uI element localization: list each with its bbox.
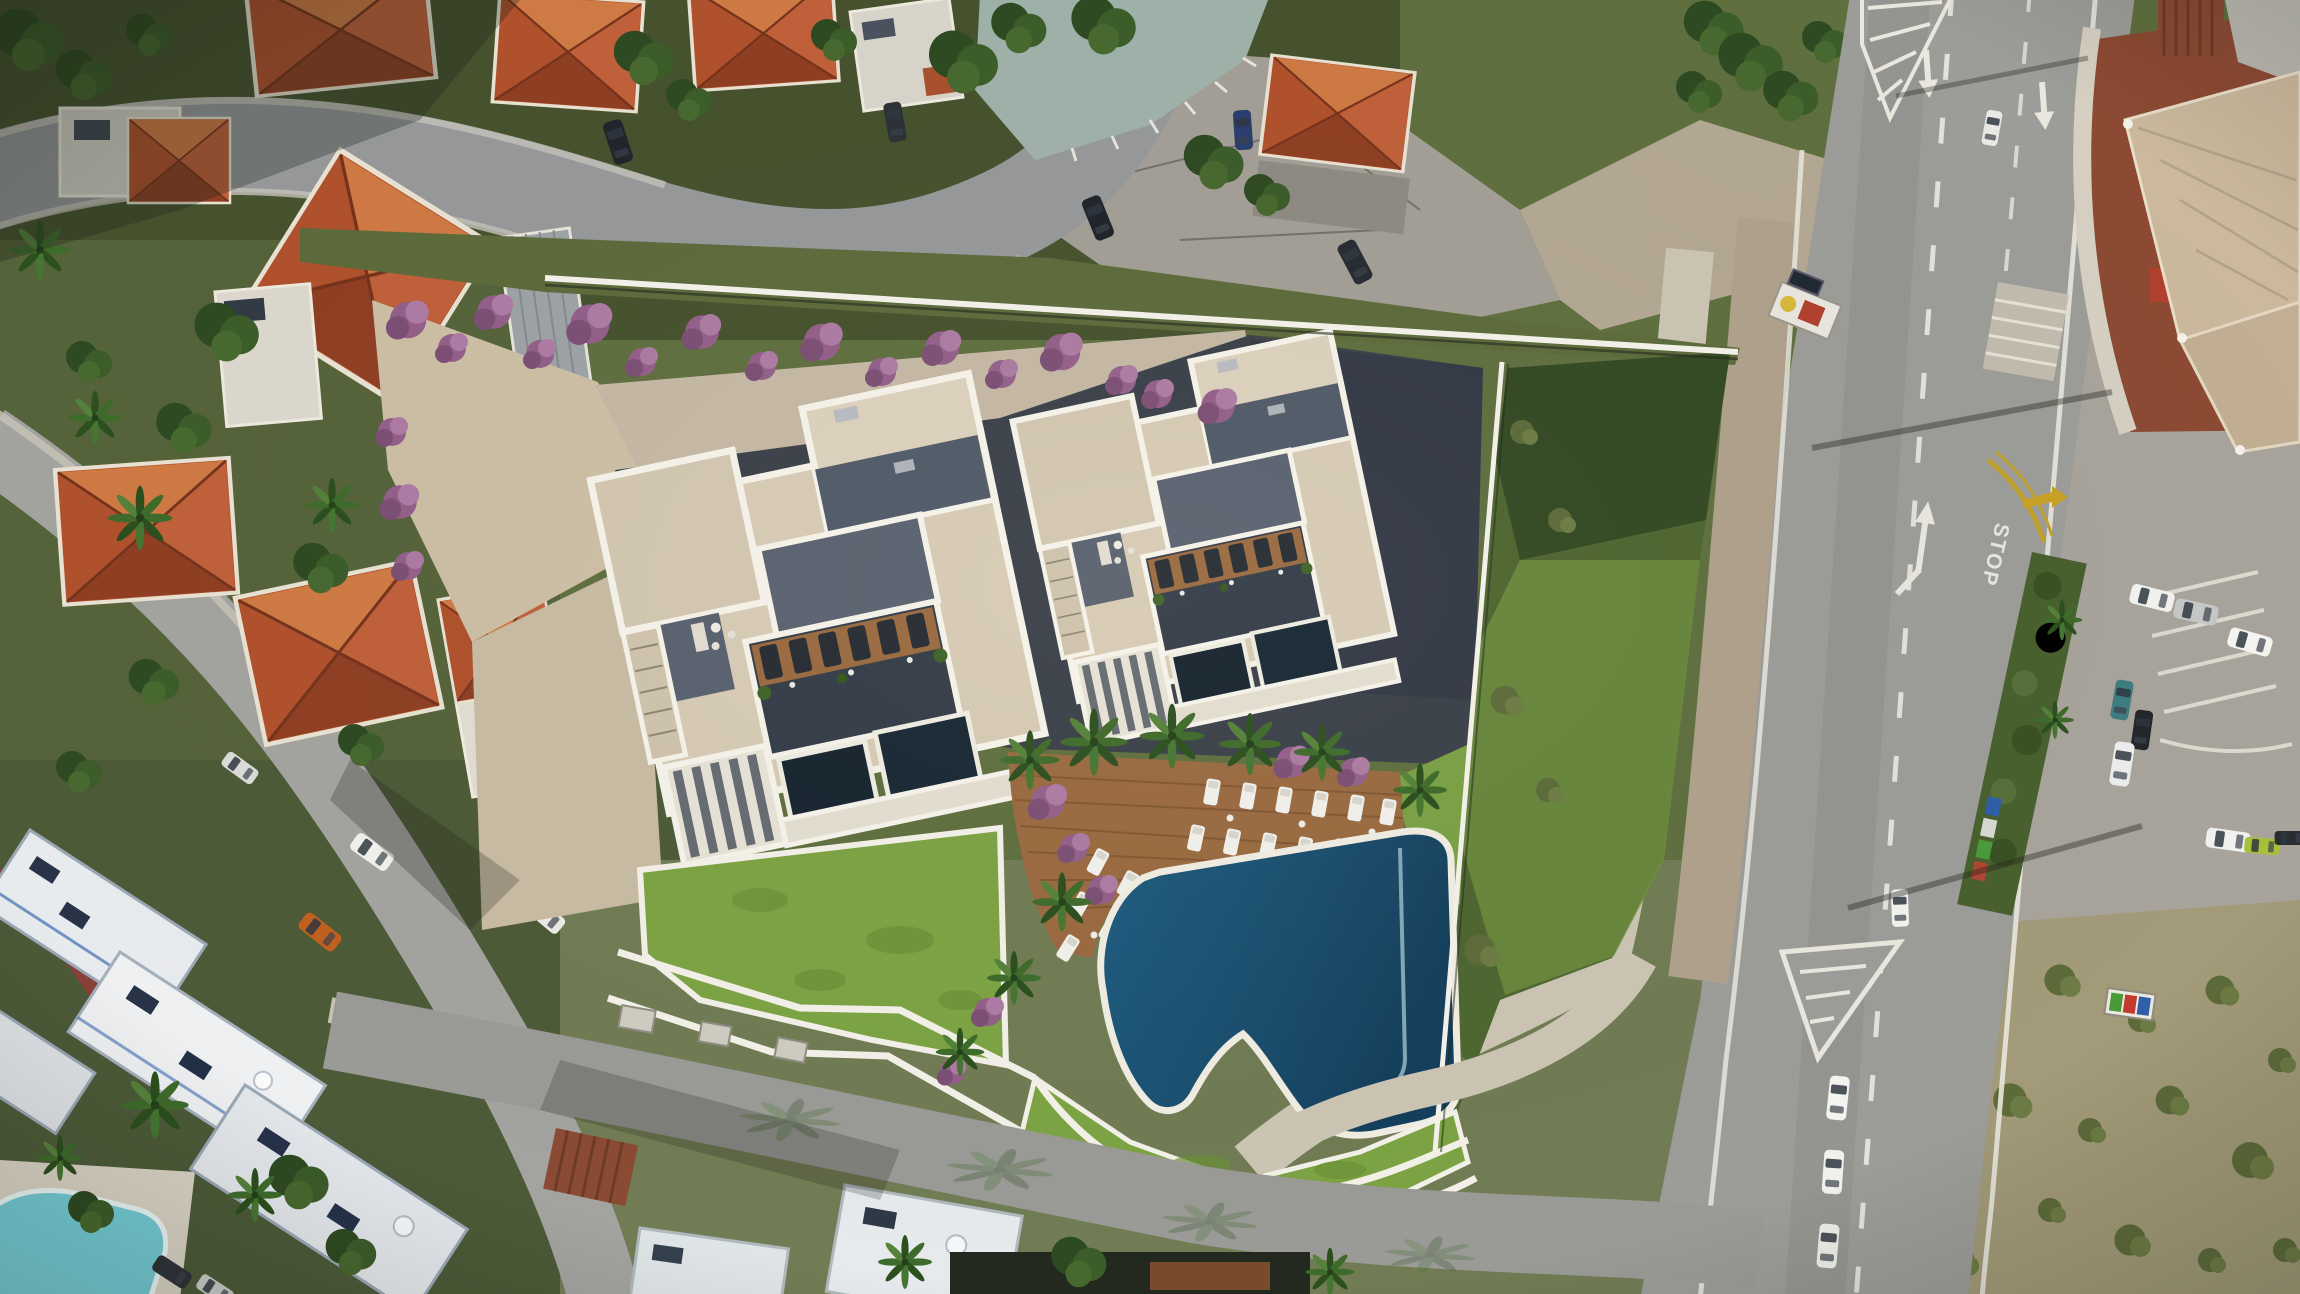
aerial-photo-canvas: STOP: [0, 0, 2300, 1294]
aerial-photo: STOP: [0, 0, 2300, 1294]
vignette: [0, 0, 2300, 1294]
shadows-overlay: [0, 0, 2300, 1294]
